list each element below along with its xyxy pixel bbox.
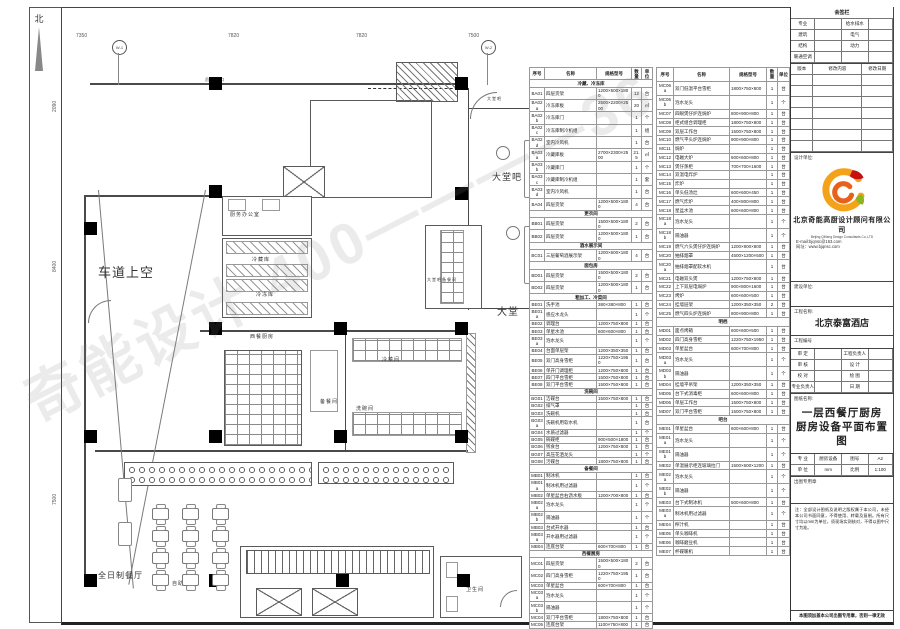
drawing-title: 一层西餐厅厨房 厨房设备平面布置图: [791, 403, 893, 453]
declaration-text: 本图须加盖本公司出图专用章，否则一律无效: [791, 611, 893, 621]
north-needle-icon: [35, 27, 43, 71]
table-row: BD02四层货架1200×500×18001台: [530, 281, 653, 293]
signoff-title: 会签栏: [791, 7, 893, 19]
equipment-table-left: 序号名称规格型号数量单位冷藏、冷冻库BA01四层货架1200×500×18001…: [529, 67, 653, 629]
table-row: ME04榨汁机1台: [657, 520, 790, 529]
sign-cell: [815, 371, 842, 382]
section-row: 备餐间: [530, 465, 653, 472]
signoff-cell: 给水排水: [842, 19, 869, 30]
dishwash-counter: [352, 412, 462, 436]
spec-cell: 单 位: [791, 465, 815, 476]
table-row: MC15炸炉1台: [657, 179, 790, 188]
table-row: BE07四门平台雪柜1500×750×8001台: [530, 374, 653, 381]
declaration-block: 本图须加盖本公司出图专用章，否则一律无效: [791, 611, 893, 621]
table-row: ME01单星盆台600×600×8001台: [657, 424, 790, 433]
signoff-cell: 电气: [842, 30, 869, 41]
wall: [84, 195, 216, 197]
desk: [228, 199, 246, 211]
desk: [262, 199, 280, 211]
table-row: BA02a冷冻库板2500×2200×250020㎡: [530, 99, 653, 111]
table-row: MD06单层工作台1500×750×8001台: [657, 398, 790, 407]
revision-cell: [813, 75, 862, 86]
table-row: MB02单星盆台右沥水板1200×700×8001台: [530, 492, 653, 499]
dimension-text: 2090: [52, 101, 58, 112]
section-row: 粗加工、冷菜间: [530, 294, 653, 301]
table-row: BB02四层货架1200×500×18001台: [530, 230, 653, 242]
revision-cell: [862, 75, 893, 86]
grid-bubble: W-2: [481, 40, 496, 55]
table-row: BA03a冷藏库板2700×2300×250021.5㎡: [530, 149, 653, 161]
table-row: MC24挂墙层架1200×350×3502台: [657, 300, 790, 309]
table-row: MC05连底台架1100×750×8001台: [530, 621, 653, 628]
revision-cell: [862, 86, 893, 97]
table-row: MC18b隔油器1个: [657, 228, 790, 242]
project-name: 北京泰富酒店: [791, 316, 893, 329]
sign-cell: 专业负责人: [791, 382, 815, 393]
wall: [84, 195, 86, 587]
shelf-rack: [226, 302, 308, 315]
table-row: BA02c冷冻库制冷机组1组: [530, 124, 653, 136]
revision-cell: [862, 97, 893, 108]
coldroom-counter: [352, 338, 462, 362]
revision-cell: [791, 141, 813, 152]
dimension-text: 7820: [228, 33, 239, 39]
table-row: MC19燃气六头煲仔炉连焗炉1200×900×8001台: [657, 242, 790, 251]
section-row: 明档: [657, 318, 790, 327]
sign-cell: [815, 349, 842, 360]
dining-table: [152, 530, 169, 542]
table-row: BG03a洗碗机用软水机1台: [530, 417, 653, 429]
table-row: MC08柜式组合调理柜1800×750×8001台: [657, 118, 790, 127]
dining-table: [152, 552, 169, 564]
room-label: 冷菜间: [382, 356, 400, 363]
table-row: ME01b隔油器1个: [657, 447, 790, 461]
dining-table: [152, 508, 169, 520]
signoff-cell: 专业: [791, 19, 815, 30]
table-row: MB03a开水器用过滤器1个: [530, 531, 653, 543]
table-row: BG02排气罩1台: [530, 402, 653, 409]
table-row: BE04台面单层架1200×350×3501台: [530, 347, 653, 354]
revision-cell: [813, 141, 862, 152]
section-row: 冷藏、冷冻库: [530, 80, 653, 87]
revision-cell: [813, 97, 862, 108]
shelf-rack: [226, 241, 308, 254]
room-label: 车道上空: [98, 262, 154, 281]
room-label: 备餐间: [320, 398, 338, 405]
table-row: MC20a抽排烟罩配软水机1台: [657, 260, 790, 274]
table-row: BG08污碟台1800×750×8001台: [530, 458, 653, 465]
table-row: MC11焗炉1台: [657, 144, 790, 153]
grid-bubble: W-1: [112, 40, 127, 55]
sign-grid-block: 审 定工程负责人审 核设 计校 对绘 图专业负责人日 期: [791, 349, 893, 394]
lounge-chair: [118, 522, 132, 546]
bar-table: [496, 146, 510, 160]
revision-cell: 版本: [791, 64, 813, 75]
drawing-title-block: 图纸名称: 一层西餐厅厨房 厨房设备平面布置图: [791, 394, 893, 454]
revision-cell: 修改内容: [813, 64, 862, 75]
table-row: MD03a泡水龙头1个: [657, 353, 790, 367]
table-row: MC16单头低汤灶600×600×4501台: [657, 188, 790, 197]
table-row: MC17燃气炸炉400×800×8001台: [657, 197, 790, 206]
table-header-row: 序号名称规格型号数量单位: [530, 68, 653, 80]
sign-cell: 工程负责人: [842, 349, 869, 360]
revision-block: 版本修改内容修改日期: [791, 64, 893, 153]
section-row: 洗碗间: [530, 388, 653, 395]
table-row: BE02调理台1200×750×8001台: [530, 320, 653, 327]
table-row: ME03台下式制冰机500×600×8001台: [657, 498, 790, 507]
table-row: MC25燃气四头炉连焗炉800×900×8001台: [657, 309, 790, 318]
dimension-text: 7350: [76, 33, 87, 39]
sign-cell: [869, 360, 893, 371]
table-row: MC12电磁大炉600×600×8001台: [657, 153, 790, 162]
table-row: MC14双温电炸炉1台: [657, 171, 790, 180]
spec-grid-block: 专 业厨房设备图号A2单 位mm比例1:100: [791, 454, 893, 477]
table-row: MC07四眼煲仔炉连焗炉800×900×8001台: [657, 109, 790, 118]
room-label: 大堂吧: [487, 96, 502, 102]
service-elevator: [283, 166, 325, 198]
table-row: BE01a感应水龙头1个: [530, 308, 653, 320]
sign-cell: [869, 349, 893, 360]
dimension-text: 7500: [52, 494, 58, 505]
table-row: BG05碗碟柜900×500×18001台: [530, 436, 653, 443]
table-row: BE05双门高身雪柜1220×750×19501台: [530, 354, 653, 366]
table-row: ME03a制冰机用过滤器1个: [657, 506, 790, 520]
revision-cell: [791, 86, 813, 97]
structural-column: [209, 322, 222, 335]
table-row: MC06a双门低温平台雪柜1800×750×8001台: [657, 81, 790, 95]
signoff-cell: [869, 19, 893, 30]
dining-table: [212, 574, 229, 586]
table-row: BA01四层货架1200×500×180012台: [530, 87, 653, 99]
table-row: MC13煲仔蒸柜700×700×16001台: [657, 162, 790, 171]
signoff-cell: [869, 30, 893, 41]
table-row: BG03洗碗机1台: [530, 410, 653, 417]
room-label: 厨务办公室: [230, 211, 260, 218]
signoff-cell: [815, 52, 842, 63]
table-row: BE03a泡水龙头1个: [530, 335, 653, 347]
table-row: MB01制冰机1台: [530, 472, 653, 479]
table-row: ME07杯碟暖机1台: [657, 547, 790, 556]
signoff-cell: 建筑: [791, 30, 815, 41]
dining-table: [212, 508, 229, 520]
revision-cell: [862, 119, 893, 130]
stamp-label: 出图专用章: [791, 477, 893, 486]
bar-table: [506, 226, 520, 240]
table-row: MD01面点烤箱600×600×5001台: [657, 326, 790, 335]
design-unit-block: 设计单位: 北京奇能高厨设计顾问有限公司 Beijing QiNeng Desi…: [791, 153, 893, 282]
table-row: ME02b隔油器1个: [657, 484, 790, 498]
table-row: MC03a泡水龙头1个: [530, 589, 653, 601]
table-row: MC23烤炉600×600×5001台: [657, 291, 790, 300]
sign-cell: [869, 371, 893, 382]
notes-block: 注：全部设计图纸及说明之版权属于本公司，未经本公司书面同意，不得使用、转载及复制…: [791, 504, 893, 611]
table-row: MD03b隔油器1个: [657, 367, 790, 381]
shelf-rack: [226, 264, 308, 277]
drawing-title-label: 图纸名称:: [791, 394, 893, 403]
structural-column: [84, 222, 97, 235]
sign-cell: [815, 382, 842, 393]
buffet-counter: [318, 462, 454, 484]
client-label: 建设单位:: [791, 282, 893, 291]
spec-cell: 专 业: [791, 454, 815, 465]
table-row: MC06b泡水龙头1个: [657, 95, 790, 109]
table-row: MC04双门平台雪柜1800×750×8001台: [530, 614, 653, 621]
title-block: 会签栏 专业给水排水建筑电气结构动力暖通空调 版本修改内容修改日期 设计单位: …: [790, 7, 893, 621]
table-row: BA02b冷冻库门1个: [530, 112, 653, 124]
structural-column: [455, 77, 468, 90]
signoff-cell: 暖通空调: [791, 52, 815, 63]
wall: [95, 450, 468, 452]
section-row: 面包房: [530, 262, 653, 269]
revision-cell: 修改日期: [862, 64, 893, 75]
revision-cell: [791, 130, 813, 141]
room-label: 西餐厨房: [250, 333, 274, 340]
table-row: MB01a制冰机用过滤器1个: [530, 479, 653, 491]
structural-column: [457, 574, 470, 587]
dining-table: [152, 574, 169, 586]
table-row: MD04挂墙平吊架1200×350×3501台: [657, 381, 790, 390]
room-label: 大堂吧: [492, 170, 522, 183]
revision-cell: [813, 119, 862, 130]
table-row: MB02b隔油器1个: [530, 511, 653, 523]
revision-cell: [791, 75, 813, 86]
structural-column: [336, 574, 349, 587]
equipment-table-right: 序号名称规格型号数量单位MC06a双门低温平台雪柜1800×750×8001台M…: [656, 67, 790, 556]
table-row: BA02d室内冷风机1台: [530, 136, 653, 148]
dining-table: [212, 552, 229, 564]
table-row: MC18a泡水龙头1个: [657, 215, 790, 229]
spec-cell: 1:100: [869, 465, 893, 476]
buffet-counter: [124, 462, 312, 486]
structural-column: [84, 574, 97, 587]
sign-cell: 设 计: [842, 360, 869, 371]
revision-cell: [791, 97, 813, 108]
table-row: MB04连底台架600×700×8001台: [530, 543, 653, 550]
drawing-sheet: 北 奇能设计 400————36: [0, 0, 900, 629]
table-row: ME06咖啡磨豆机1台: [657, 538, 790, 547]
dimension-text: 8400: [52, 261, 58, 272]
dimension-text: 7820: [356, 33, 367, 39]
project-no-label: 工程编号: [791, 336, 893, 345]
dining-table: [182, 508, 199, 520]
table-row: BE06单开门调理柜1200×750×8001台: [530, 367, 653, 374]
table-row: MC18星盆水池600×600×8001台: [657, 206, 790, 215]
table-row: ME02a泡水龙头1个: [657, 470, 790, 484]
design-unit-label: 设计单位:: [791, 153, 893, 162]
table-row: BG06残食台1200×750×8001台: [530, 443, 653, 450]
table-row: BA03d室内冷风机1台: [530, 186, 653, 198]
signoff-cell: [842, 52, 869, 63]
table-row: BE03单星水池600×600×8001台: [530, 328, 653, 335]
table-row: MB02a泡水龙头1个: [530, 499, 653, 511]
table-row: BG07高压花洒龙头1个: [530, 451, 653, 458]
signoff-cell: 结构: [791, 41, 815, 52]
signoff-cell: [815, 30, 842, 41]
revision-cell: [813, 86, 862, 97]
spec-cell: 图号: [842, 454, 869, 465]
table-row: BC01三层葡萄酒展示架1200×600×18004台: [530, 249, 653, 261]
table-row: ME01a泡水龙头1个: [657, 433, 790, 447]
table-row: MC02四门高身雪柜1220×750×19501台: [530, 570, 653, 582]
spec-cell: mm: [815, 465, 842, 476]
table-row: MC09双层工作台1500×750×8001台: [657, 127, 790, 136]
spec-cell: 厨房设备: [815, 454, 842, 465]
stamp-block: 出图专用章: [791, 477, 893, 504]
room-label: 冷冻库: [256, 291, 274, 298]
table-row: MC03b隔油器1个: [530, 602, 653, 614]
revision-cell: [862, 141, 893, 152]
sign-cell: 绘 图: [842, 371, 869, 382]
table-row: BA04四层货架1200×500×18004台: [530, 198, 653, 210]
table-row: MC21电磁双头煲1200×750×8001台: [657, 274, 790, 283]
signoff-cell: 动力: [842, 41, 869, 52]
dining-tables: [152, 508, 229, 586]
sign-cell: [815, 360, 842, 371]
company-name: 北京奇能高厨设计顾问有限公司: [793, 215, 891, 235]
north-label: 北: [34, 14, 43, 24]
bar-counter: [440, 230, 464, 304]
table-row: MC22上下双层电焗炉900×800×16001台: [657, 283, 790, 292]
table-row: BG01洁碟台1500×750×8001台: [530, 395, 653, 402]
revision-grid: 版本修改内容修改日期: [791, 64, 893, 152]
project-block: 工程名称: 北京泰富酒店: [791, 307, 893, 336]
project-label: 工程名称:: [791, 307, 893, 316]
structural-column: [209, 185, 222, 198]
kitchen-island: [224, 350, 302, 446]
section-row: 酒水展示间: [530, 242, 653, 249]
signoff-cell: [815, 19, 842, 30]
sign-cell: 审 定: [791, 349, 815, 360]
structural-column: [84, 430, 97, 443]
lounge-chair: [118, 478, 132, 502]
room-label: 洗碗间: [356, 405, 374, 412]
dimension-text: 7500: [468, 33, 479, 39]
table-row: MC10燃气平头炉连焗炉900×900×8001台: [657, 136, 790, 145]
table-row: ME05单头咖啡机1台: [657, 529, 790, 538]
signoff-grid: 专业给水排水建筑电气结构动力暖通空调: [791, 19, 893, 63]
table-row: BE08双门平台雪柜1500×750×8001台: [530, 381, 653, 388]
grid-line: [118, 53, 119, 85]
structural-column: [209, 430, 222, 443]
table-header-row: 序号名称规格型号数量单位: [657, 68, 790, 82]
revision-cell: [813, 130, 862, 141]
revision-cell: [791, 108, 813, 119]
service-room: [310, 100, 432, 198]
table-row: BD01四层货架1500×500×18002台: [530, 269, 653, 281]
revision-cell: [813, 108, 862, 119]
dining-table: [182, 552, 199, 564]
table-row: MD02四门高身雪柜1220×750×19501台: [657, 335, 790, 344]
dining-table: [182, 530, 199, 542]
dining-table: [212, 530, 229, 542]
table-row: BA03b冷藏库门1个: [530, 161, 653, 173]
company-website: 网址：www.bjqnsc.com: [793, 244, 840, 250]
table-row: BA03c冷藏库制冷机组1套: [530, 173, 653, 185]
signoff-cell: [815, 41, 842, 52]
company-logo-icon: [816, 165, 868, 215]
north-arrow: 北: [26, 12, 52, 71]
table-row: ME02单温展示柜连玻璃拉门1500×600×12001台: [657, 461, 790, 470]
table-row: MD03单星盆台600×700×8001台: [657, 344, 790, 353]
revision-cell: [791, 119, 813, 130]
structural-column: [455, 322, 468, 335]
sign-cell: [869, 382, 893, 393]
sign-cell: 校 对: [791, 371, 815, 382]
room-label: 全日制餐厅: [98, 570, 143, 581]
signoff-cell: [869, 52, 893, 63]
dining-table: [182, 574, 199, 586]
sign-cell: 日 期: [842, 382, 869, 393]
table-row: MB03台式开水器1台: [530, 524, 653, 531]
structural-column: [455, 187, 468, 200]
spec-cell: 比例: [842, 465, 869, 476]
escalator-hatch: [396, 62, 458, 102]
project-no-block: 工程编号: [791, 336, 893, 349]
client-block: 建设单位:: [791, 282, 893, 307]
structural-column: [334, 322, 347, 335]
structural-column: [334, 430, 347, 443]
table-row: BB01四层货架1500×500×18002台: [530, 218, 653, 230]
table-row: MC20抽排烟罩4500×1200×5001台: [657, 251, 790, 260]
revision-cell: [862, 130, 893, 141]
structural-column: [455, 430, 468, 443]
section-row: 西餐厨房: [530, 550, 653, 557]
room-label: 冷藏库: [252, 256, 270, 263]
copyright-notes: 注：全部设计图纸及说明之版权属于本公司，未经本公司书面同意，不得使用、转载及复制…: [791, 504, 893, 535]
section-row: 更衣间: [530, 210, 653, 217]
revision-cell: [862, 108, 893, 119]
structural-column: [209, 77, 222, 90]
sign-grid: 审 定工程负责人审 核设 计校 对绘 图专业负责人日 期: [791, 349, 893, 393]
room-label: 大堂吧备餐间: [427, 277, 457, 283]
table-row: BG04水质过滤器1个: [530, 429, 653, 436]
sign-cell: 审 核: [791, 360, 815, 371]
room-label: 卫生间: [466, 586, 484, 593]
signoff-block: 会签栏 专业给水排水建筑电气结构动力暖通空调: [791, 7, 893, 64]
table-row: MD07双门平台雪柜1500×750×8001台: [657, 407, 790, 416]
table-row: BE01洗手池380×380×8001台: [530, 301, 653, 308]
spec-grid: 专 业厨房设备图号A2单 位mm比例1:100: [791, 454, 893, 476]
table-row: MD05台下式消毒柜600×600×8001台: [657, 389, 790, 398]
signoff-cell: [869, 41, 893, 52]
room-label: 大堂: [497, 303, 519, 318]
section-row: 吧台: [657, 416, 790, 425]
table-row: MC01四层货架1500×500×18002台: [530, 557, 653, 569]
grid-line: [487, 53, 488, 85]
table-row: MC03单星盆台600×700×8001台: [530, 582, 653, 589]
spec-cell: A2: [869, 454, 893, 465]
fixture: [446, 596, 458, 612]
